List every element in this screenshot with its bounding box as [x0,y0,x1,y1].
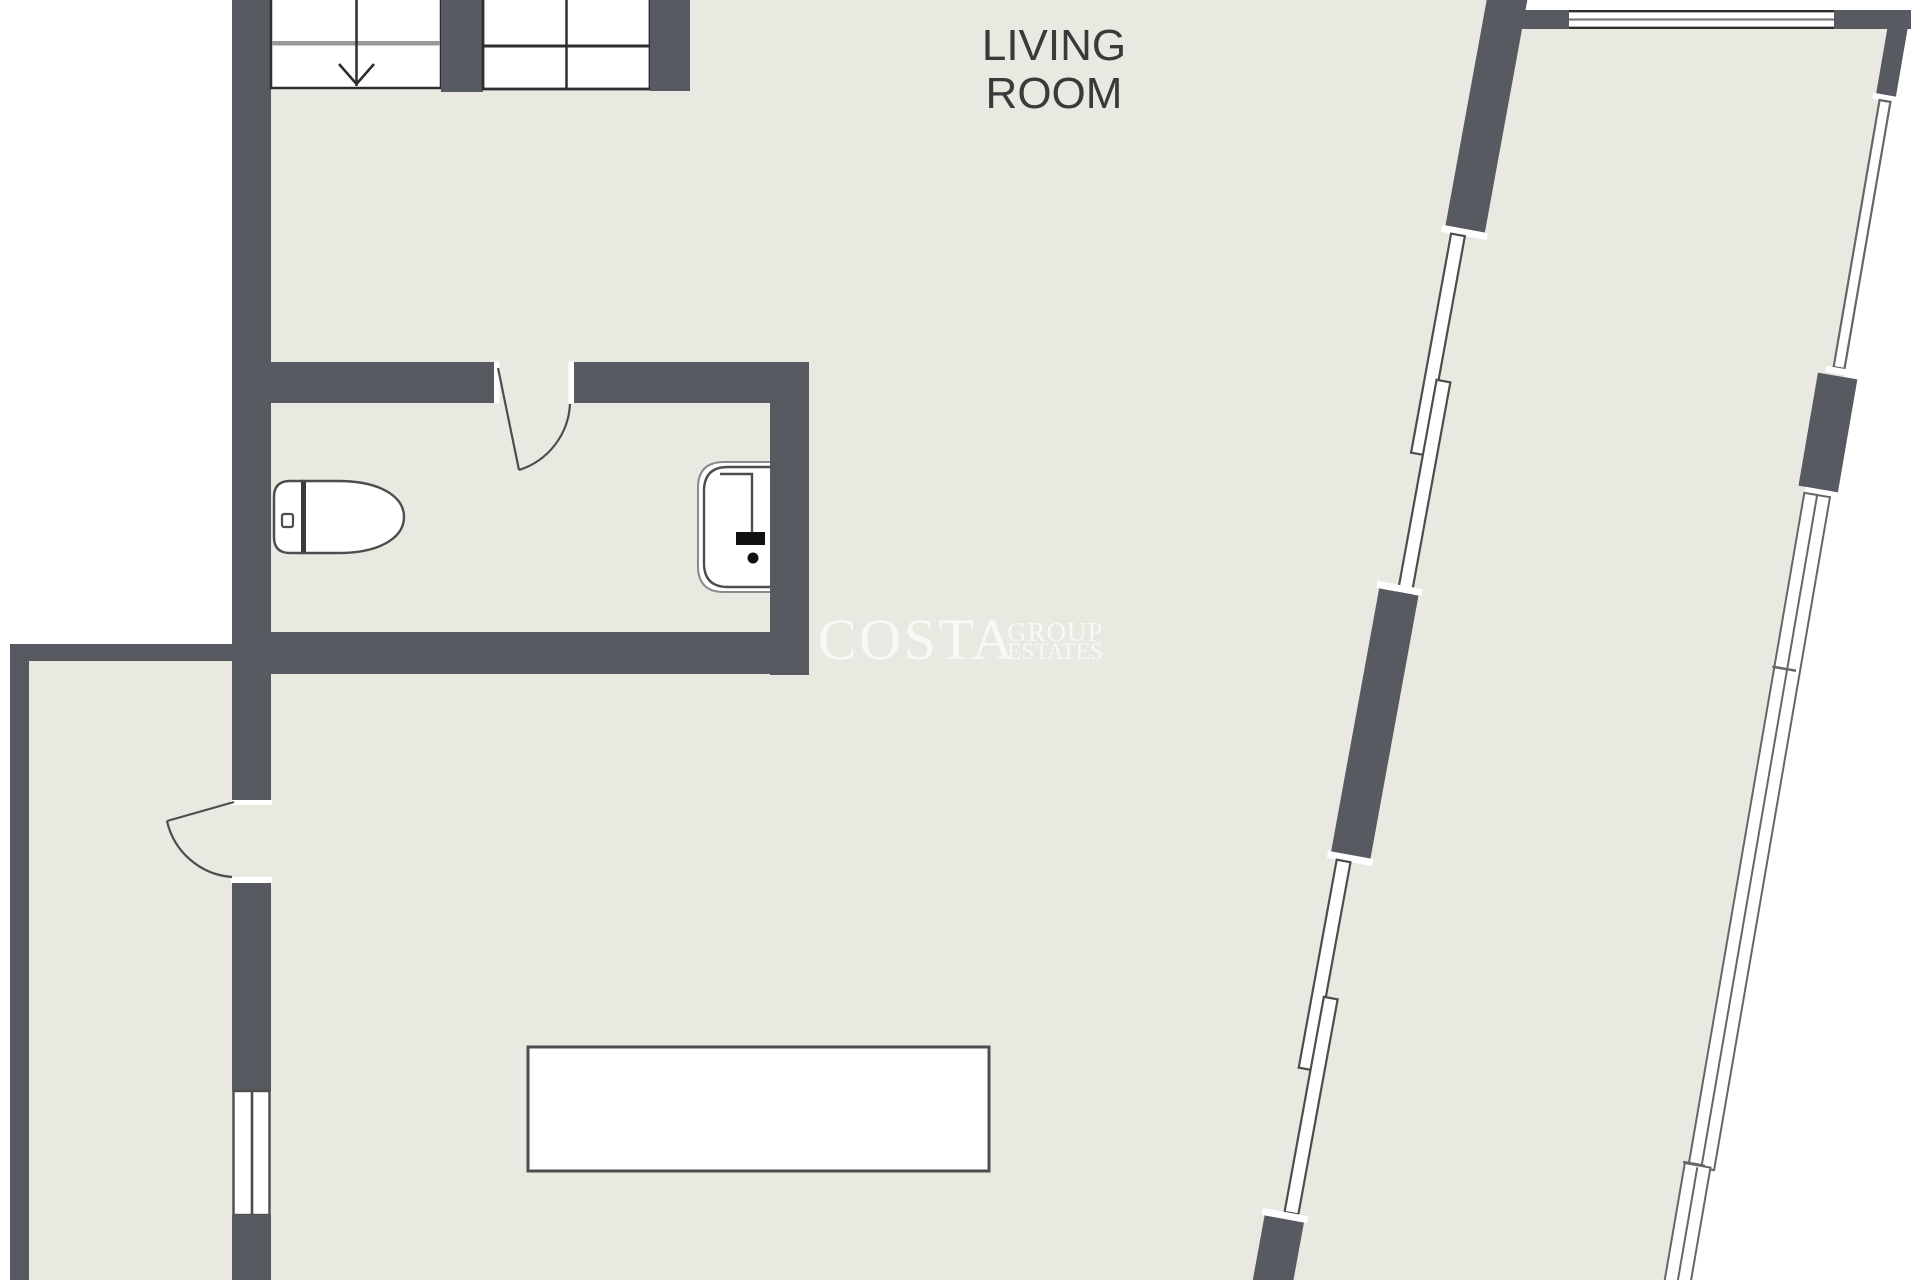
svg-text:LIVING: LIVING [982,21,1126,70]
svg-text:ROOM: ROOM [986,69,1123,118]
svg-text:COSTA: COSTA [818,607,1016,672]
svg-text:ESTATES: ESTATES [1007,639,1103,665]
